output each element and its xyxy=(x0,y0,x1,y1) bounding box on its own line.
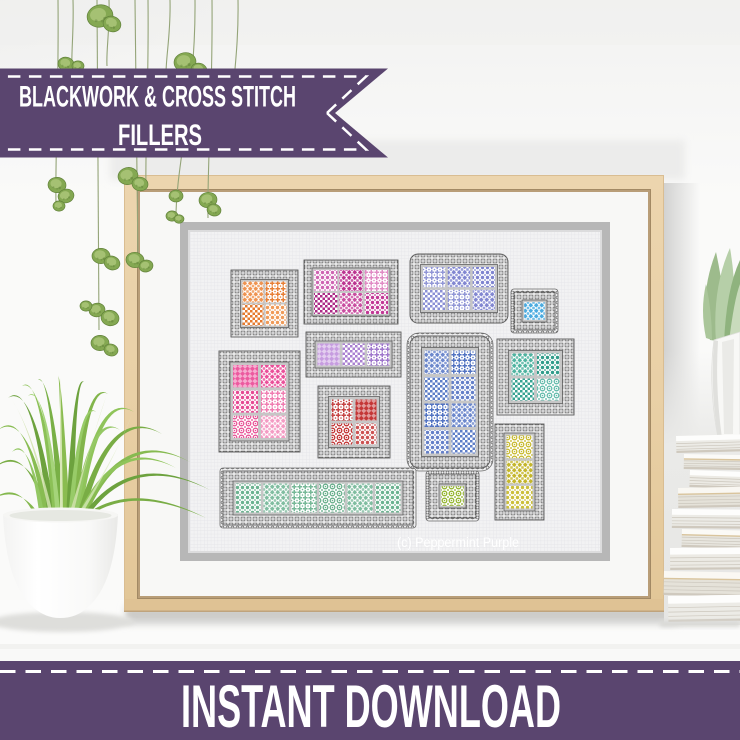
svg-text:(c) Peppermint Purple: (c) Peppermint Purple xyxy=(397,535,519,550)
svg-text:BLACKWORK & CROSS STITCH: BLACKWORK & CROSS STITCH xyxy=(19,81,296,114)
svg-text:FILLERS: FILLERS xyxy=(118,119,202,152)
svg-text:INSTANT DOWNLOAD: INSTANT DOWNLOAD xyxy=(181,673,561,740)
